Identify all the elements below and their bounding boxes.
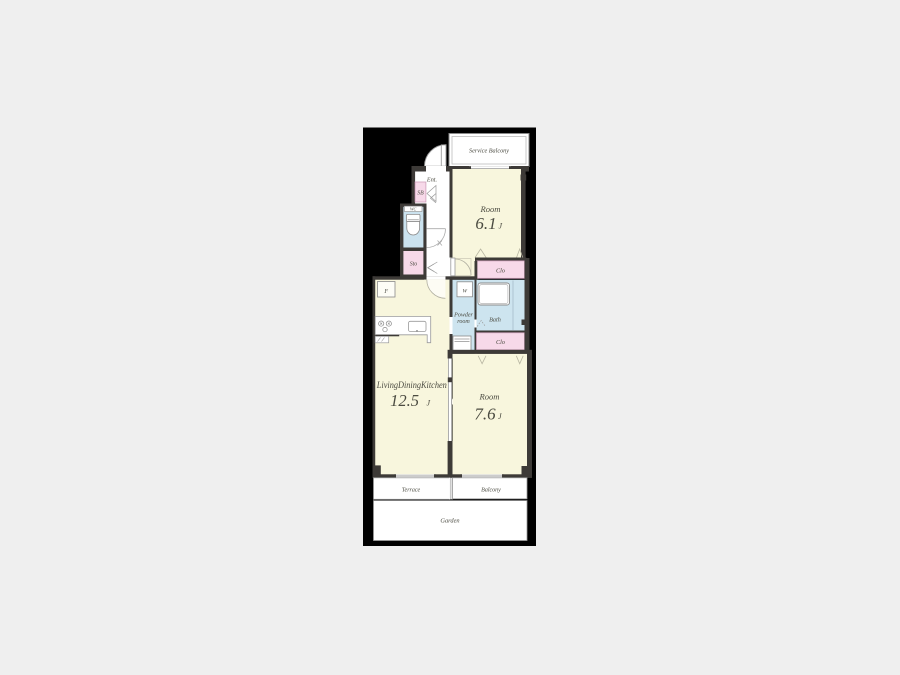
svg-text:Powder: Powder [453,313,473,319]
svg-text:Sto: Sto [410,262,418,268]
svg-text:Ent.: Ent. [426,177,437,184]
svg-text:Clo: Clo [496,339,505,346]
svg-text:WC: WC [410,207,416,212]
svg-text:F: F [383,289,388,295]
svg-text:Room: Room [478,392,499,402]
svg-text:J: J [499,222,503,231]
svg-text:12.5: 12.5 [390,391,419,410]
svg-text:W: W [462,289,467,295]
svg-text:Room: Room [479,204,500,214]
svg-text:J: J [427,399,431,408]
svg-text:J: J [498,412,502,421]
svg-text:7.6: 7.6 [474,405,496,424]
svg-text:Terrace: Terrace [402,487,421,493]
svg-text:Balcony: Balcony [481,487,501,493]
svg-text:Service Balcony: Service Balcony [469,148,509,155]
svg-text:room: room [457,319,470,325]
svg-text:6.1: 6.1 [475,214,496,233]
svg-text:Bath: Bath [489,317,501,324]
svg-text:Garden: Garden [440,517,459,524]
svg-text:Clo: Clo [496,267,505,274]
svg-text:LivingDiningKitchen: LivingDiningKitchen [376,380,447,390]
svg-text:SB: SB [417,191,424,197]
